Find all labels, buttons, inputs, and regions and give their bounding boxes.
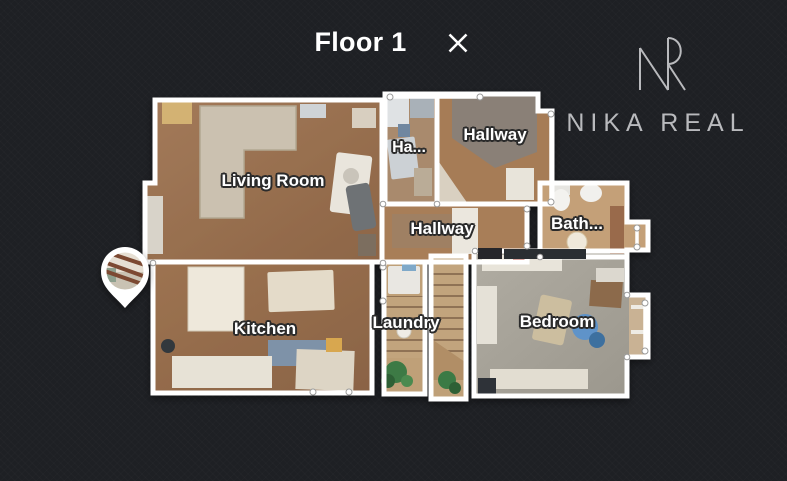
- close-icon: [445, 30, 471, 56]
- floor-title: Floor 1: [314, 27, 406, 58]
- room-label-hallway-upper[interactable]: Hallway: [463, 125, 526, 145]
- room-label-living-room[interactable]: Living Room: [222, 171, 325, 191]
- room-label-kitchen[interactable]: Kitchen: [234, 319, 296, 339]
- close-button[interactable]: [443, 28, 473, 58]
- room-label-bedroom[interactable]: Bedroom: [520, 312, 595, 332]
- brand-name: NIKA REAL: [553, 109, 763, 138]
- room-label-hallway-main[interactable]: Hallway: [410, 219, 473, 239]
- nr-monogram-icon: [627, 34, 689, 92]
- brand-logo: NIKA REAL: [553, 34, 763, 138]
- room-label-hallway-small[interactable]: Ha...: [392, 139, 426, 157]
- door-gaps: [478, 248, 586, 259]
- room-label-laundry[interactable]: Laundry: [372, 313, 439, 333]
- room-label-bathroom[interactable]: Bath...: [551, 214, 603, 234]
- location-pin[interactable]: [101, 247, 149, 308]
